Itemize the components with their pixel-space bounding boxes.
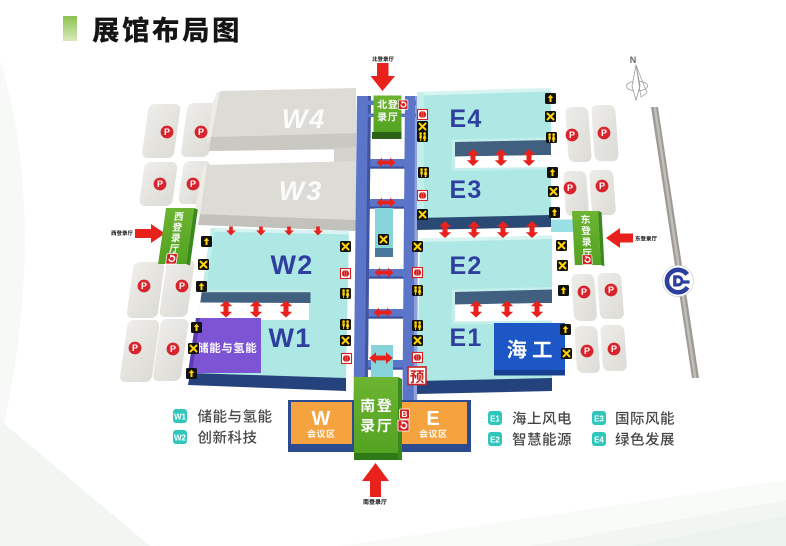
svg-text:W2: W2: [271, 250, 314, 280]
svg-text:W: W: [312, 408, 331, 430]
svg-text:W1: W1: [174, 413, 187, 422]
svg-text:P: P: [584, 346, 590, 356]
svg-text:P: P: [608, 285, 614, 295]
svg-text:E2: E2: [450, 252, 483, 280]
svg-text:P: P: [567, 183, 573, 193]
svg-text:P: P: [157, 179, 163, 189]
svg-text:N: N: [630, 55, 637, 65]
svg-text:E3: E3: [450, 176, 483, 204]
svg-text:P: P: [170, 344, 176, 354]
svg-text:P: P: [569, 130, 575, 140]
svg-text:P: P: [179, 281, 185, 291]
svg-text:E1: E1: [490, 415, 500, 424]
svg-text:E1: E1: [450, 324, 483, 352]
svg-text:P: P: [599, 181, 605, 191]
svg-text:W4: W4: [282, 104, 327, 134]
svg-text:E4: E4: [594, 436, 604, 445]
svg-text:W2: W2: [174, 434, 187, 443]
svg-text:P: P: [581, 287, 587, 297]
svg-text:P: P: [141, 281, 147, 291]
svg-text:E2: E2: [490, 436, 500, 445]
svg-text:P: P: [611, 344, 617, 354]
svg-text:P: P: [164, 127, 170, 137]
svg-text:E4: E4: [450, 105, 483, 133]
svg-text:P: P: [601, 128, 607, 138]
svg-text:E: E: [426, 408, 439, 430]
svg-text:E3: E3: [594, 415, 604, 424]
svg-text:P: P: [198, 127, 204, 137]
svg-text:P: P: [132, 343, 138, 353]
svg-text:W3: W3: [279, 176, 324, 206]
svg-text:P: P: [190, 179, 196, 189]
svg-text:W1: W1: [269, 323, 312, 353]
